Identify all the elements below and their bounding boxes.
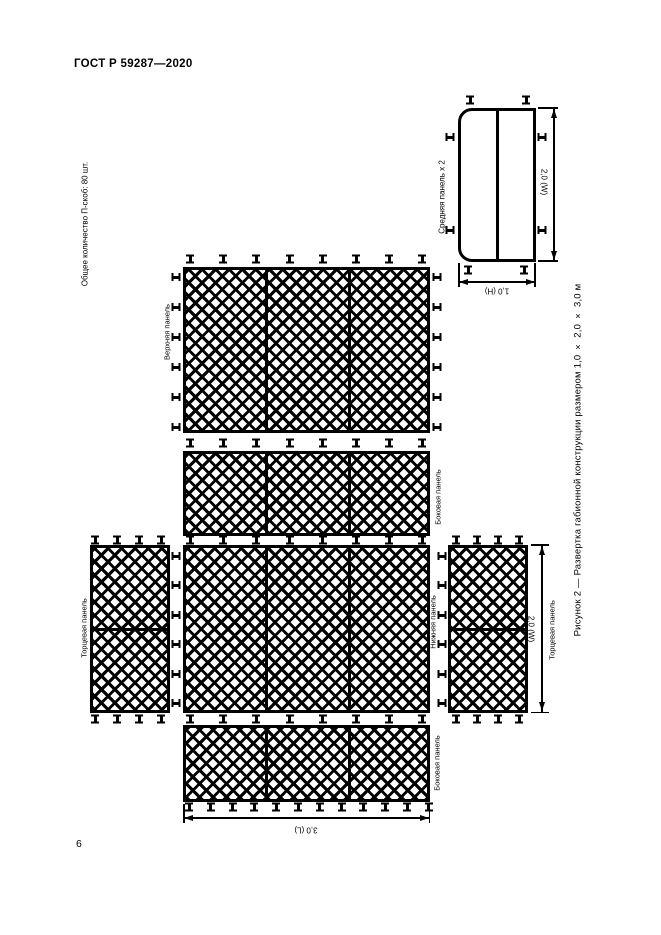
staple-icon <box>522 96 530 105</box>
middle-panel-width-value: 2,0 (W) <box>540 169 549 195</box>
side-panel-lower-label: Боковая панель <box>433 735 442 790</box>
staple-icon <box>381 803 389 812</box>
panel-divider <box>265 728 268 799</box>
staple-icon <box>438 640 447 648</box>
staple-icon <box>538 226 547 234</box>
staple-count-note: Общее количество П-скоб: 80 шт. <box>81 162 90 287</box>
staple-icon <box>135 715 143 724</box>
staple-icon <box>172 333 181 341</box>
staple-icon <box>91 536 99 545</box>
staple-icon <box>252 536 260 545</box>
staple-icon <box>172 640 181 648</box>
panel-divider <box>348 270 351 430</box>
staple-icon <box>515 715 523 724</box>
staple-icon <box>157 715 165 724</box>
panel-divider <box>93 628 167 631</box>
panel-divider <box>265 548 268 710</box>
staple-icon <box>286 715 294 724</box>
staple-icon <box>172 363 181 371</box>
staple-icon <box>319 255 327 264</box>
staple-icon <box>473 536 481 545</box>
panel-divider <box>265 270 268 430</box>
staple-icon <box>438 699 447 707</box>
staple-icon <box>352 439 360 448</box>
staple-icon <box>172 393 181 401</box>
staple-icon <box>113 715 121 724</box>
panel-divider <box>496 111 499 259</box>
length-dimension-value: 3,0 (L) <box>294 826 317 835</box>
standard-number: ГОСТ Р 59287—2020 <box>74 58 193 70</box>
panel-divider <box>348 728 351 799</box>
staple-icon <box>250 803 258 812</box>
staple-icon <box>219 536 227 545</box>
staple-icon <box>538 133 547 141</box>
staple-icon <box>157 536 165 545</box>
staple-icon <box>316 803 324 812</box>
staple-icon <box>418 536 426 545</box>
side-panel-upper-drawing <box>183 451 430 536</box>
staple-icon <box>172 699 181 707</box>
staple-icon <box>286 255 294 264</box>
staple-icon <box>385 715 393 724</box>
staple-icon <box>385 255 393 264</box>
staple-icon <box>352 255 360 264</box>
staple-icon <box>385 536 393 545</box>
staple-icon <box>494 715 502 724</box>
staple-icon <box>433 363 442 371</box>
page-number: 6 <box>76 838 82 850</box>
staple-icon <box>186 715 194 724</box>
staple-icon <box>135 536 143 545</box>
bottom-panel-drawing <box>183 545 430 713</box>
staple-icon <box>172 581 181 589</box>
staple-icon <box>359 803 367 812</box>
staple-icon <box>219 255 227 264</box>
staple-icon <box>172 552 181 560</box>
staple-icon <box>425 803 433 812</box>
staple-icon <box>418 255 426 264</box>
staple-icon <box>113 536 121 545</box>
staple-icon <box>252 439 260 448</box>
staple-icon <box>446 133 455 141</box>
staple-icon <box>464 266 472 275</box>
staple-icon <box>520 266 528 275</box>
staple-icon <box>438 670 447 678</box>
staple-icon <box>186 439 194 448</box>
staple-icon <box>385 439 393 448</box>
staple-icon <box>286 439 294 448</box>
end-panel-left-drawing <box>90 545 170 713</box>
staple-icon <box>433 393 442 401</box>
bottom-panel-label: Нижняя панель <box>429 595 438 649</box>
staple-icon <box>338 803 346 812</box>
width-dimension-value: 2,0 (W) <box>527 616 536 642</box>
staple-icon <box>186 255 194 264</box>
staple-icon <box>438 552 447 560</box>
staple-icon <box>172 303 181 311</box>
end-panel-right-label: Торцевая панель <box>548 600 557 660</box>
staple-icon <box>418 715 426 724</box>
panel-divider <box>265 454 268 533</box>
staple-icon <box>403 803 411 812</box>
staple-icon <box>229 803 237 812</box>
figure-caption: Рисунок 2 — Развертка габионной конструк… <box>573 284 584 637</box>
panel-divider <box>451 628 525 631</box>
staple-icon <box>172 423 181 431</box>
end-panel-left-label: Торцевая панель <box>80 598 89 658</box>
staple-icon <box>433 333 442 341</box>
staple-icon <box>352 536 360 545</box>
staple-icon <box>319 439 327 448</box>
staple-icon <box>466 96 474 105</box>
staple-icon <box>219 439 227 448</box>
staple-icon <box>418 439 426 448</box>
side-panel-lower-drawing <box>183 725 430 802</box>
top-panel-drawing <box>183 267 430 433</box>
staple-icon <box>172 273 181 281</box>
end-panel-right-drawing <box>448 545 528 713</box>
staple-icon <box>172 670 181 678</box>
staple-icon <box>473 715 481 724</box>
staple-icon <box>319 536 327 545</box>
staple-icon <box>515 536 523 545</box>
middle-panel-height-value: 1,0 (H) <box>485 287 509 296</box>
side-panel-upper-label: Боковая панель <box>434 469 443 524</box>
panel-divider <box>348 454 351 533</box>
staple-icon <box>446 226 455 234</box>
document-page: ГОСТ Р 59287—2020 6 Общее количество П-с… <box>0 0 661 935</box>
staple-icon <box>172 611 181 619</box>
staple-icon <box>272 803 280 812</box>
middle-panel-drawing <box>458 108 536 262</box>
top-panel-label: Верхняя панель <box>163 304 172 360</box>
staple-icon <box>452 536 460 545</box>
panel-divider <box>348 548 351 710</box>
staple-icon <box>91 715 99 724</box>
staple-icon <box>433 303 442 311</box>
staple-icon <box>438 611 447 619</box>
staple-icon <box>438 581 447 589</box>
staple-icon <box>319 715 327 724</box>
staple-icon <box>452 715 460 724</box>
staple-icon <box>186 536 194 545</box>
staple-icon <box>352 715 360 724</box>
staple-icon <box>185 803 193 812</box>
middle-panel-label: Средняя панель х 2 <box>438 160 447 234</box>
staple-icon <box>252 715 260 724</box>
staple-icon <box>252 255 260 264</box>
staple-icon <box>286 536 294 545</box>
staple-icon <box>207 803 215 812</box>
staple-icon <box>433 273 442 281</box>
staple-icon <box>219 715 227 724</box>
staple-icon <box>433 423 442 431</box>
staple-icon <box>294 803 302 812</box>
staple-icon <box>494 536 502 545</box>
